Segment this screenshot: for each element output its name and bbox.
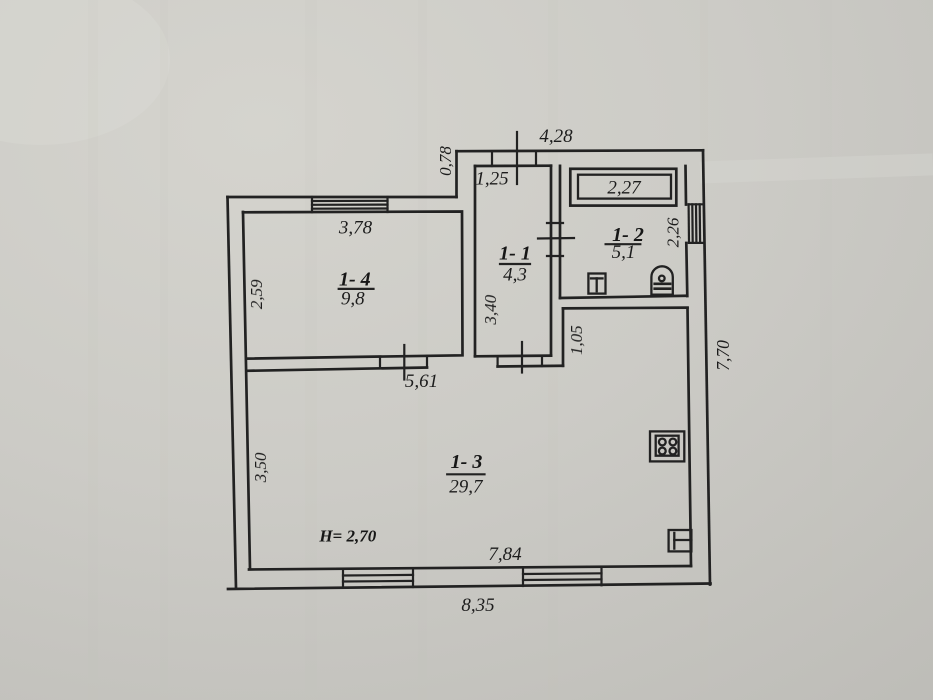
svg-text:1- 4: 1- 4 xyxy=(339,269,371,291)
svg-text:7,70: 7,70 xyxy=(713,340,733,371)
svg-text:3,40: 3,40 xyxy=(481,294,500,325)
svg-text:5,61: 5,61 xyxy=(405,371,438,392)
svg-text:7,84: 7,84 xyxy=(488,544,522,565)
svg-text:1,05: 1,05 xyxy=(567,325,586,355)
svg-text:8,35: 8,35 xyxy=(461,595,494,616)
svg-text:2,26: 2,26 xyxy=(664,217,683,247)
svg-text:1- 3: 1- 3 xyxy=(451,451,483,473)
svg-text:H= 2,70: H= 2,70 xyxy=(318,527,376,546)
svg-text:29,7: 29,7 xyxy=(449,477,484,498)
svg-text:1,25: 1,25 xyxy=(475,169,508,190)
svg-text:4,28: 4,28 xyxy=(539,126,573,147)
svg-text:4,3: 4,3 xyxy=(503,265,527,286)
svg-text:5,1: 5,1 xyxy=(612,242,636,263)
svg-text:1- 1: 1- 1 xyxy=(499,243,531,265)
svg-text:3,78: 3,78 xyxy=(338,218,373,239)
svg-text:3,50: 3,50 xyxy=(251,452,270,483)
svg-text:0,78: 0,78 xyxy=(436,146,455,176)
svg-text:9,8: 9,8 xyxy=(341,289,365,310)
svg-text:2,59: 2,59 xyxy=(247,279,266,309)
svg-text:2,27: 2,27 xyxy=(607,178,642,199)
